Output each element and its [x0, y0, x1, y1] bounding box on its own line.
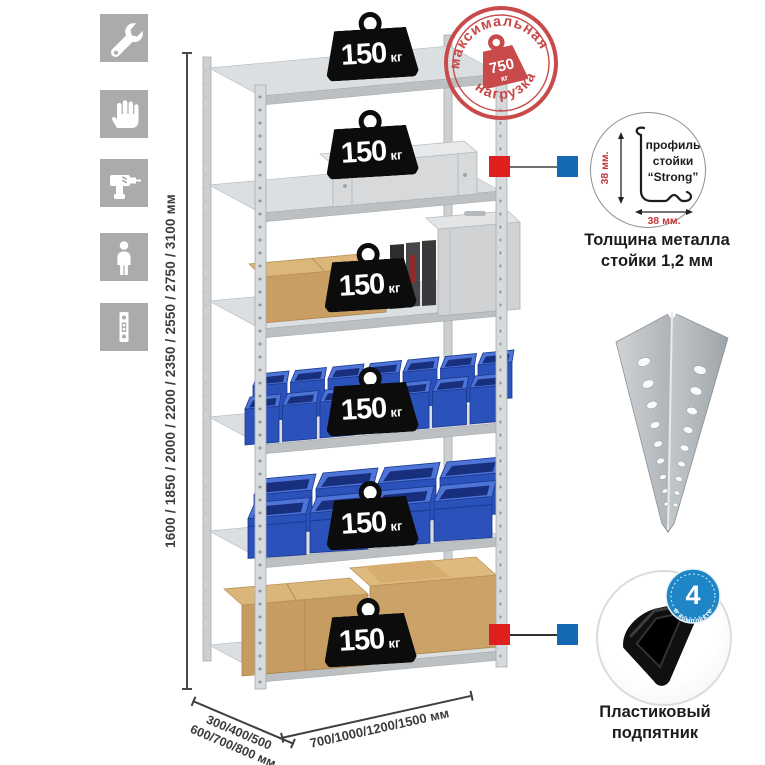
badge-value: 4: [685, 580, 700, 610]
shelf-load-badge: 150кг: [321, 240, 417, 312]
marker-blue-bottom: [557, 624, 578, 645]
product-infographic: 1600 / 1850 / 2000 / 2200 / 2350 / 2550 …: [0, 0, 765, 765]
load-unit: кг: [388, 635, 401, 651]
load-value: 150: [340, 37, 387, 73]
load-unit: кг: [388, 280, 401, 296]
connector-line-bottom: [508, 634, 560, 636]
load-unit: кг: [390, 147, 403, 163]
shelf-load-badge: 150кг: [321, 595, 417, 667]
load-unit: кг: [390, 49, 403, 65]
shelf-load-badge: 150кг: [323, 9, 419, 81]
load-unit: кг: [390, 404, 403, 420]
load-unit: кг: [390, 518, 403, 534]
load-value: 150: [338, 268, 385, 304]
shelf-load-badge: 150кг: [323, 478, 419, 550]
connector-line-top: [508, 166, 560, 168]
load-value: 150: [340, 135, 387, 171]
load-value: 150: [340, 392, 387, 428]
marker-red-bottom: [489, 624, 510, 645]
shelf-load-badge: 150кг: [323, 364, 419, 436]
shelf-load-badge: 150кг: [323, 107, 419, 179]
marker-blue-top: [557, 156, 578, 177]
quantity-badge: 4 в комплекте: [664, 567, 722, 625]
marker-red-top: [489, 156, 510, 177]
load-value: 150: [340, 506, 387, 542]
load-value: 150: [338, 623, 385, 659]
